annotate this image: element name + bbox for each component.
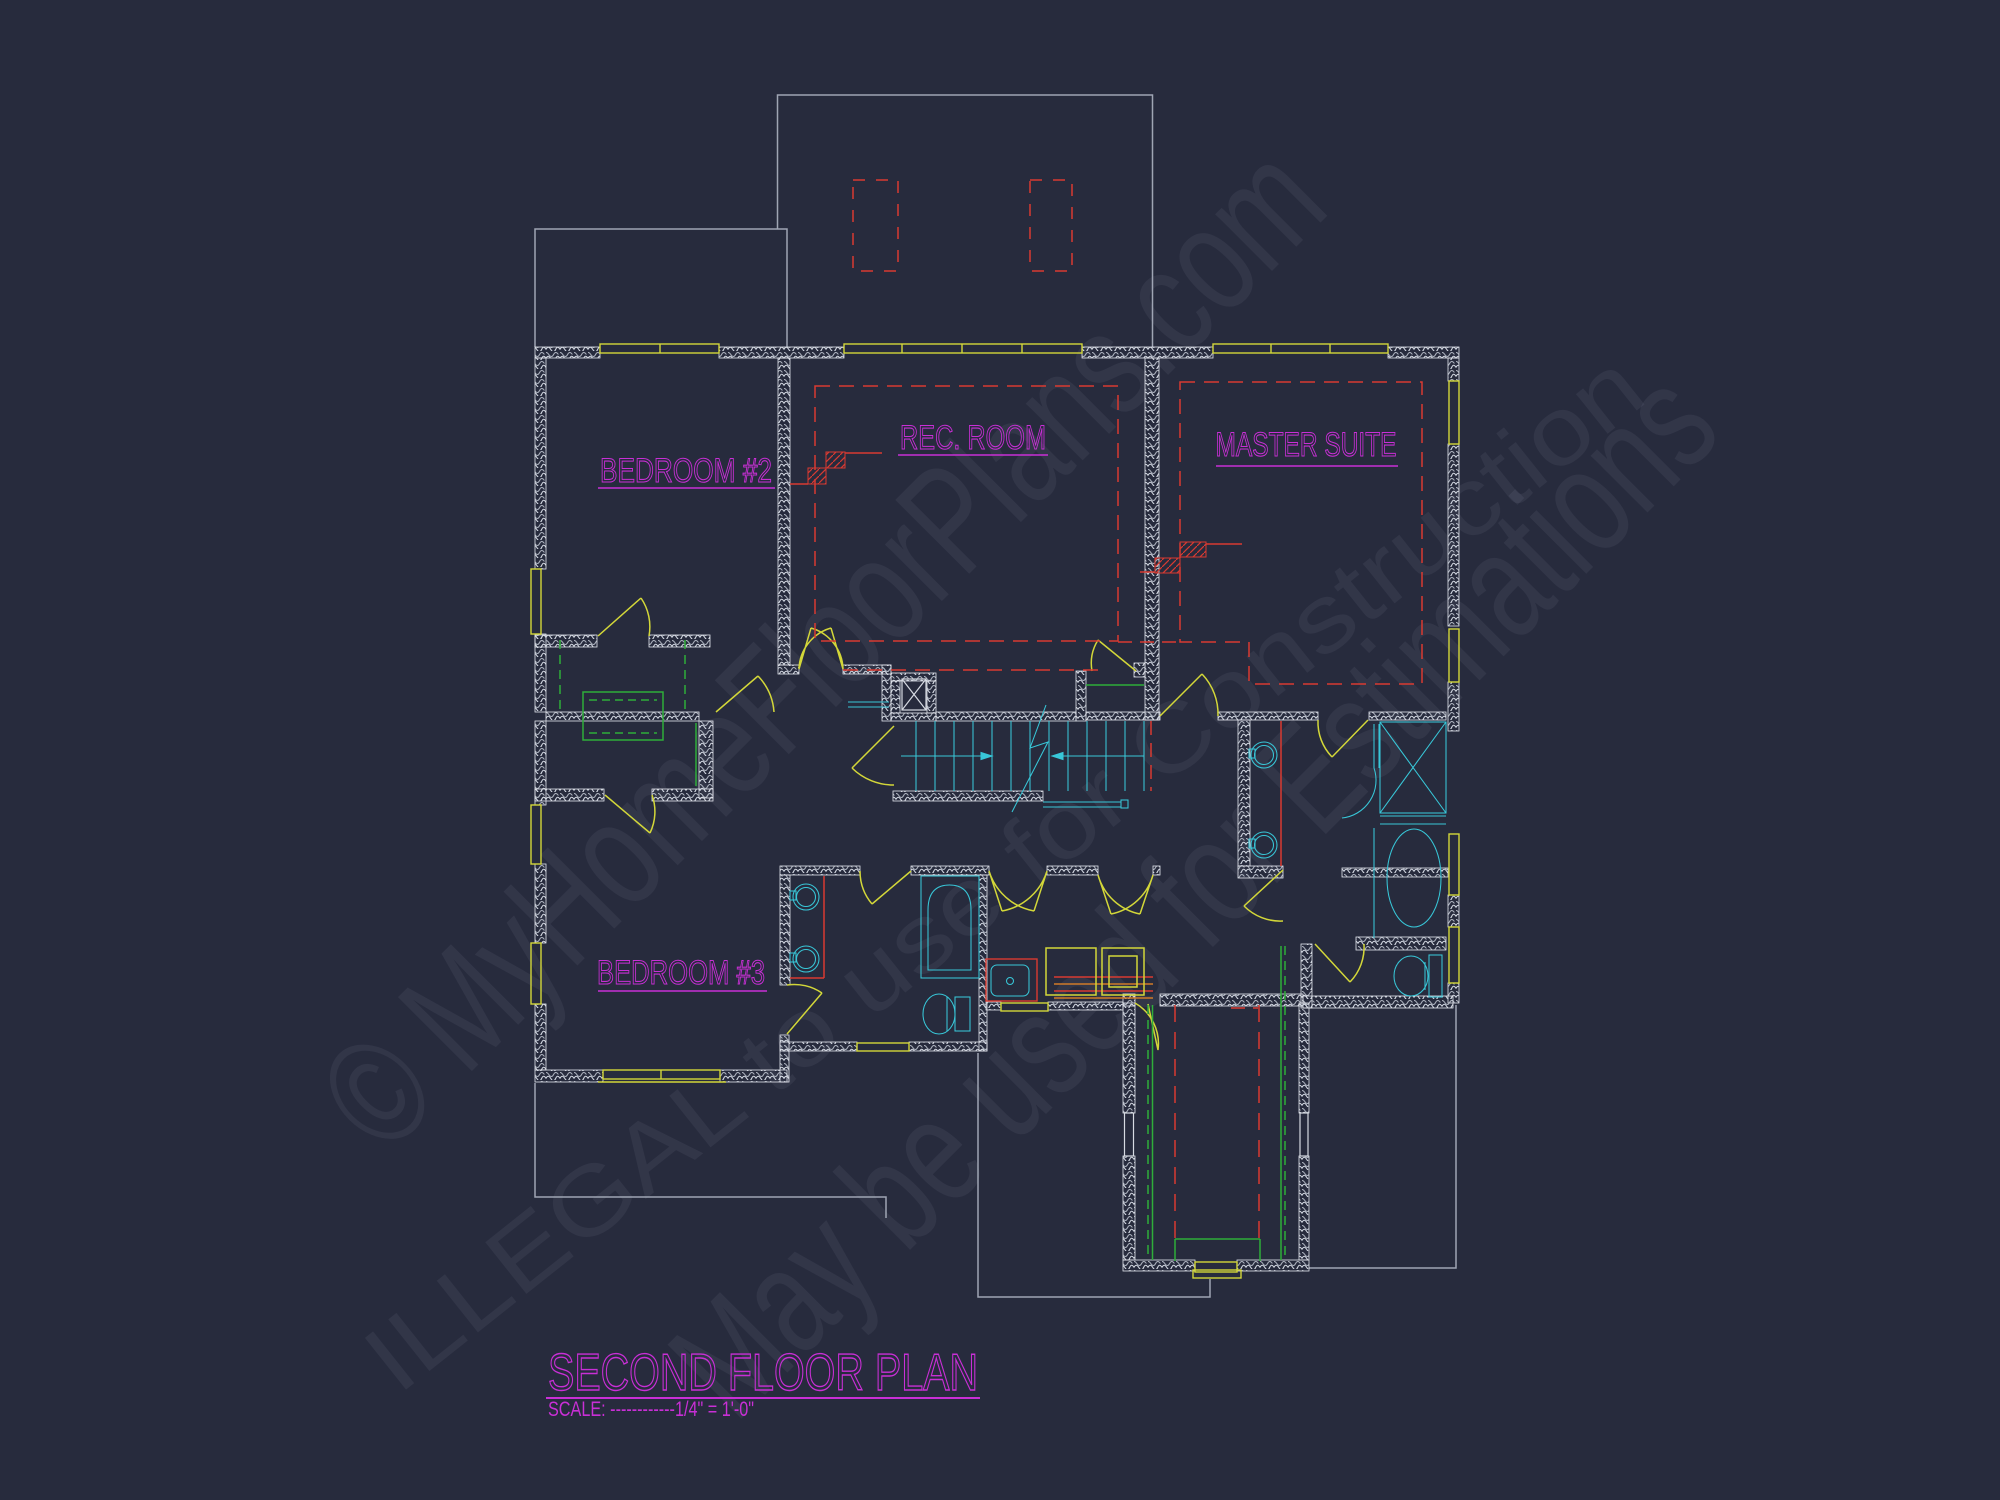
svg-text:BEDROOM #2: BEDROOM #2 xyxy=(600,452,772,490)
svg-text:MASTER SUITE: MASTER SUITE xyxy=(1216,426,1397,464)
svg-text:SECOND FLOOR PLAN: SECOND FLOOR PLAN xyxy=(548,1344,978,1402)
svg-text:SCALE: ------------1/4" = 1'-0: SCALE: ------------1/4" = 1'-0" xyxy=(548,1398,754,1421)
svg-text:REC. ROOM: REC. ROOM xyxy=(900,419,1046,457)
svg-text:BEDROOM #3: BEDROOM #3 xyxy=(597,954,765,992)
